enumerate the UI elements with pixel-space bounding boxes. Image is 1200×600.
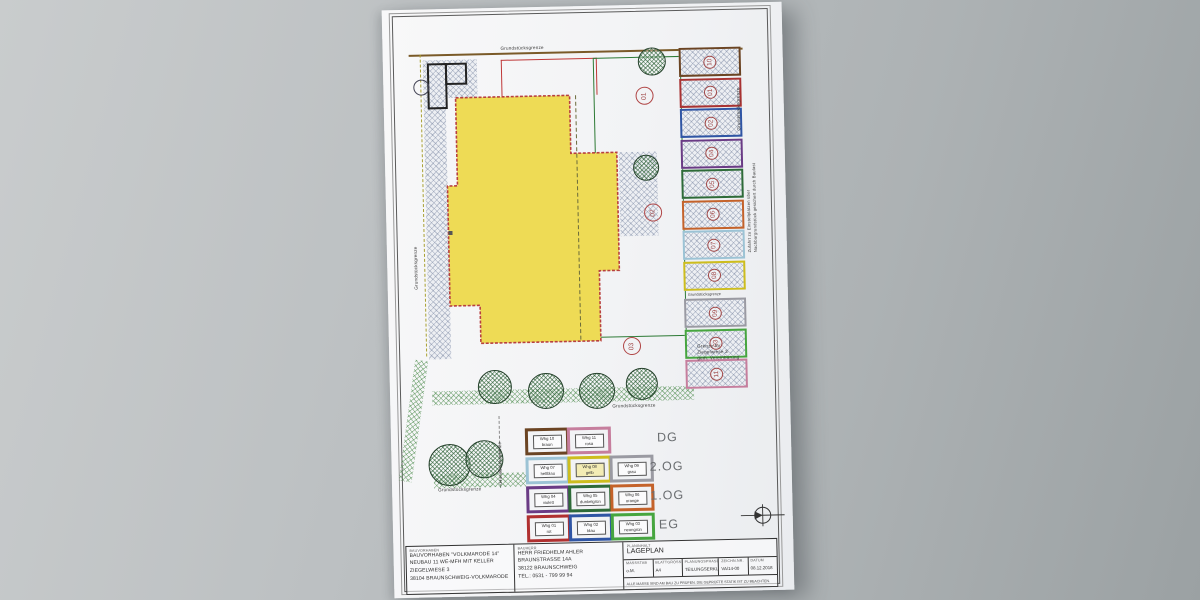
stall-number: 11 [710,367,723,380]
legend-box-whg06: Whg 06orange [610,484,655,512]
field-value: VA/14-00 [721,565,745,571]
boundary-label: Grundstücksgrenze [438,486,481,493]
field-massstab: MASSSTAB o.M. [624,560,654,578]
parking-stall: 10 [679,47,742,77]
field-planungsphase: PLANUNGSPHASE TEILUNGSERKL. [683,558,720,576]
titleblock-client-column: BAUHERR HERR FRIEDHELM AHLER BRAUNSTRASS… [515,542,625,591]
title-block: BAUVORHABEN BAUVORHABEN "VOLKMARODE 14" … [405,538,778,595]
legend-box-whg03: Whg 03neongrün [611,513,656,541]
parking-stall: 08 [683,260,746,290]
field-zeichnungsnr: ZEICHN.NR. VA/14-00 [719,558,749,576]
legend-box-whg11: Whg 11rosa [567,427,612,455]
legend-color-name: dunkelgrün [580,498,601,504]
field-value: TEILUNGSERKL. [685,566,717,572]
client-line: TEL.: 0531 - 799 99 94 [518,572,620,582]
project-line: 38104 BRAUNSCHWEIG-VOLKMARODE [410,574,511,584]
field-header: MASSSTAB [626,561,650,566]
legend-box-whg04: Whg 04violett [526,485,571,513]
field-header: DATUM [750,558,774,563]
boundary-label: Grundstücksgrenze [413,246,420,289]
field-header: BLATTGRÖSSE [655,560,679,565]
field-blattgroesse: BLATTGRÖSSE A4 [653,559,683,577]
legend-box-whg02: Whg 02blau [569,514,614,542]
titleblock-project-column: BAUVORHABEN BAUVORHABEN "VOLKMARODE 14" … [406,545,515,594]
grenze-note-line3: gem. Vereinbarung [697,355,739,362]
survey-point-marker [448,231,452,235]
stall-number: 04 [705,147,718,160]
parking-stall: 02 [680,108,743,138]
parking-stall: 05 [681,169,744,199]
floor-label-1og: 1.OG [650,488,684,503]
field-value: A4 [655,567,679,573]
legend-color-name: braun [542,441,553,446]
legend-color-name: rosa [585,440,593,445]
legend-color-name: grau [627,468,636,473]
parking-stall: 04 [681,138,744,168]
stall-number: 08 [708,269,721,282]
legend-color-name: gelb [586,469,594,474]
parking-stall: 09 [684,298,747,328]
titleblock-plan-column: PLANINHALT LAGEPLAN MASSSTAB o.M. BLATTG… [624,539,778,589]
field-value: o.M. [626,567,650,573]
legend-box-whg01: Whg 01rot [527,514,572,542]
legend-box-whg05: Whg 05dunkelgrün [568,485,613,513]
legend-color-name: blau [587,527,595,532]
field-datum: DATUM 08.12.2018 [748,557,777,575]
legend-box-whg09: Whg 09grau [609,455,654,483]
enclosure-structure-2 [445,63,467,85]
parking-stall: 07 [683,230,746,260]
parking-stall: 06 [682,199,745,229]
stall-number: 07 [707,238,720,251]
floor-label-eg: EG [659,517,679,531]
legend-color-name: neongrün [624,526,642,532]
stall-number: 10 [703,55,716,68]
building-footprint [441,90,627,350]
boundary-label: Grundstücksgrenze [612,403,655,410]
legend-color-name: rot [547,528,552,533]
legend-box-whg08: Whg 08gelb [567,456,612,484]
field-header: ZEICHN.NR. [721,559,745,564]
north-compass-icon [740,500,785,531]
floor-label-2og: 2.OG [649,459,683,474]
parking-stall: 01 [679,77,742,107]
boundary-label: Grundstücksgrenze [735,87,742,130]
site-plan-sheet: 01 02 03 10 01 02 04 05 06 07 08 Grundst… [382,2,795,599]
legend-color-name: hellblau [540,470,555,476]
desk-surface: 01 02 03 10 01 02 04 05 06 07 08 Grundst… [0,0,1200,600]
grenze-note: Grenze für Ziegelwiese 3 gem. Vereinbaru… [697,343,740,362]
stall-number: 09 [709,306,722,319]
stall-number: 02 [705,116,718,129]
stall-number: 05 [706,177,719,190]
stall-number: 06 [707,208,720,221]
legend-box-whg10: Whg 10braun [525,427,570,455]
legend-color-name: orange [626,497,639,503]
legend-color-name: violett [543,499,554,504]
legend-box-whg07: Whg 07hellblau [525,456,570,484]
parking-stall: 11 [685,359,748,389]
titleblock-note-row: ALLE MASSE SIND AM BAU ZU PRÜFEN. DIE GE… [624,574,777,589]
floor-label-dg: DG [657,430,678,444]
titleblock-note: ALLE MASSE SIND AM BAU ZU PRÜFEN. DIE GE… [627,579,771,586]
boundary-label: Grundstücksgrenze [500,45,543,52]
boundary-label: Grundstücksgrenze [497,442,504,485]
field-value: 08.12.2018 [751,564,775,570]
field-header: PLANUNGSPHASE [685,559,717,564]
stall-number: 01 [704,86,717,99]
